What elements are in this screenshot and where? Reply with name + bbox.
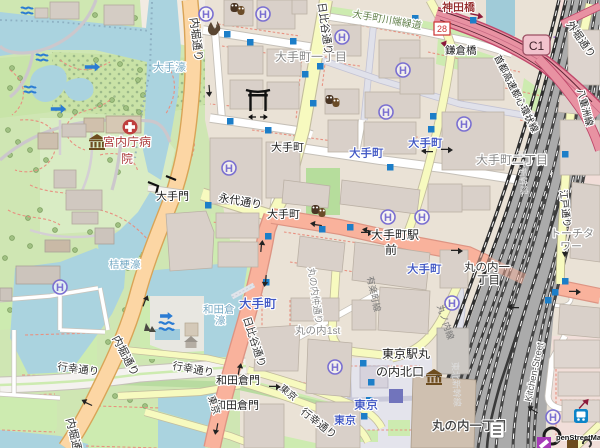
svg-text:H: H (448, 298, 456, 310)
svg-text:H: H (399, 65, 407, 77)
svg-text:H: H (382, 107, 390, 119)
svg-text:H: H (418, 212, 426, 224)
svg-text:H: H (460, 119, 468, 131)
svg-text:H: H (338, 32, 346, 44)
svg-text:H: H (384, 212, 392, 224)
svg-text:H: H (56, 282, 64, 294)
svg-text:C1: C1 (529, 39, 545, 53)
svg-text:1st: 1st (327, 326, 341, 337)
svg-text:28: 28 (437, 24, 447, 34)
svg-text:H: H (331, 362, 339, 374)
svg-text:H: H (259, 9, 267, 21)
svg-text:H: H (225, 163, 233, 175)
svg-text:H: H (549, 412, 557, 424)
svg-text:H: H (202, 9, 210, 21)
